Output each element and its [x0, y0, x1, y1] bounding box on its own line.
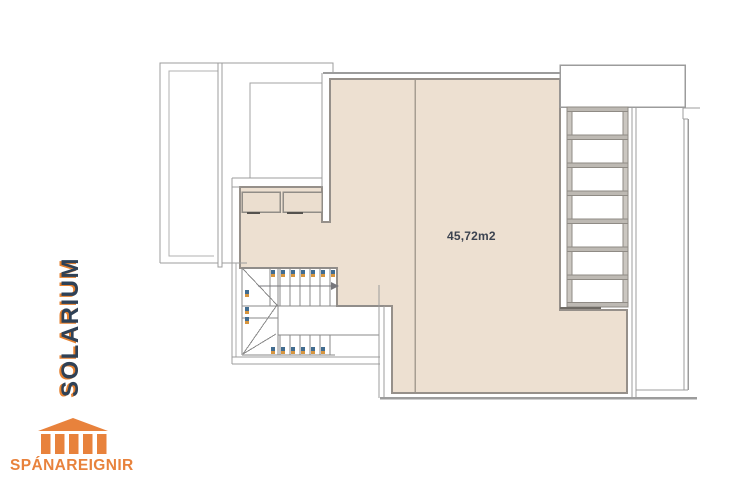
top-right-room: [560, 65, 685, 107]
brand-name: SPÁNAREIGNIR: [10, 457, 142, 475]
area-label: 45,72m2: [447, 229, 517, 245]
brand-logo: SPÁNAREIGNIR: [10, 418, 142, 475]
right-terrace-walls: [632, 107, 700, 397]
pergola-louvers: [560, 107, 628, 308]
temple-icon: [38, 418, 108, 454]
floor-plan-drawing: [0, 0, 730, 484]
plan-title: SOLARIUM: [55, 247, 87, 407]
page: SOLARIUM 45,72m2 SPÁNAREIGNIR: [0, 0, 730, 484]
